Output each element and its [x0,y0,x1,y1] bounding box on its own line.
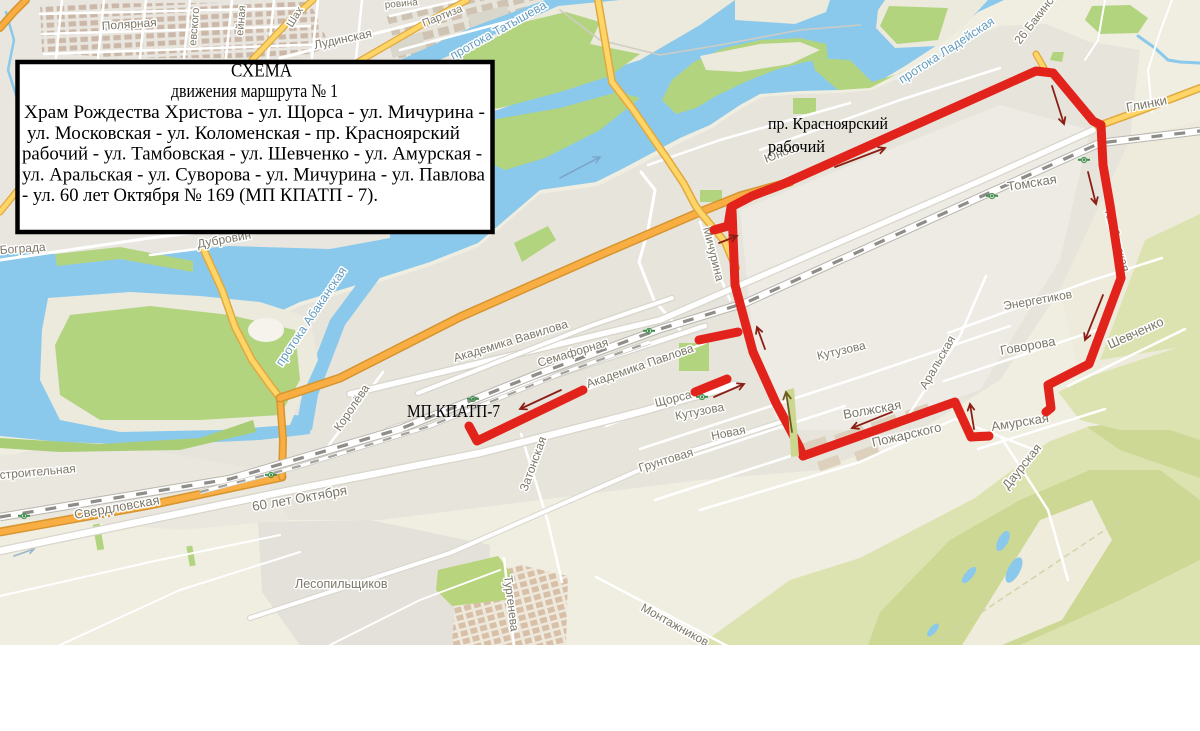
svg-text:СХЕМА: СХЕМА [231,61,292,82]
svg-text:МП КПАТП-7: МП КПАТП-7 [407,401,500,421]
svg-text:ул. Московская - ул. Коломенск: ул. Московская - ул. Коломенская - пр. К… [27,123,460,144]
svg-text:Лесопильщиков: Лесопильщиков [295,577,388,591]
svg-text:рабочий: рабочий [768,137,825,156]
svg-text:движения маршрута № 1: движения маршрута № 1 [171,81,338,102]
svg-text:рабочий - ул. Тамбовская - ул.: рабочий - ул. Тамбовская - ул. Шевченко … [22,144,482,165]
svg-text:пр. Красноярский: пр. Красноярский [768,114,888,133]
svg-text:- ул. 60 лет Октября № 169 (МП: - ул. 60 лет Октября № 169 (МП КПАТП - 7… [22,185,378,206]
svg-text:Храм Рождества Христова - ул.: Храм Рождества Христова - ул. Щорса - ул… [24,102,485,123]
svg-text:ул. Аральская - ул. Суворова -: ул. Аральская - ул. Суворова - ул. Мичур… [22,164,486,185]
